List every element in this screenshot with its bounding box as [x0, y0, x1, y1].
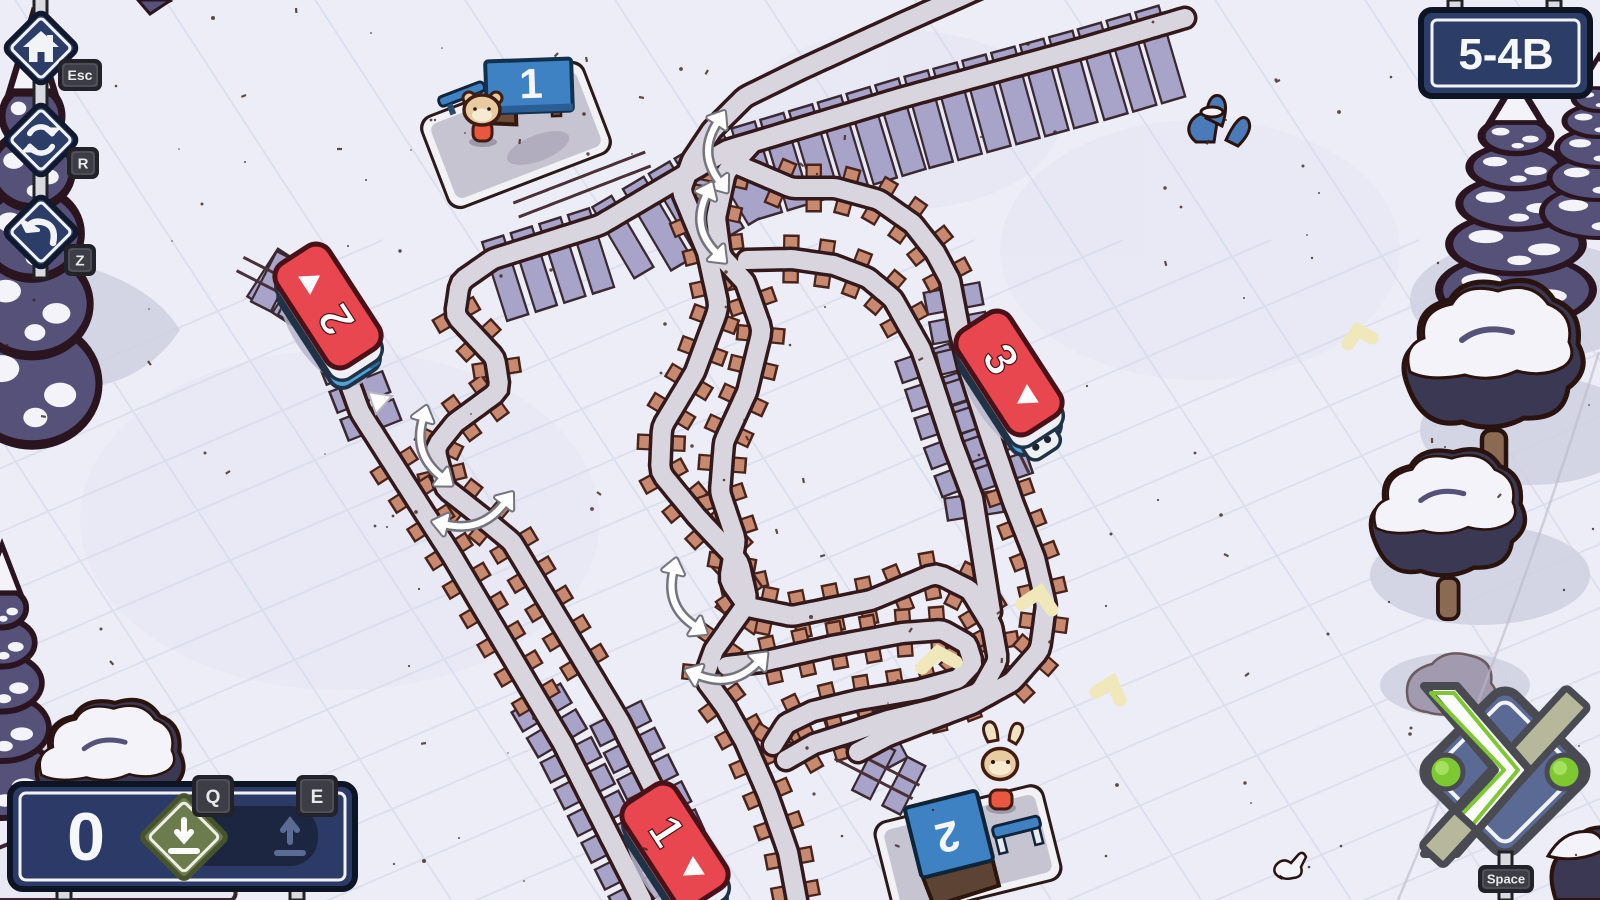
- svg-text:Esc: Esc: [68, 67, 93, 83]
- svg-text:Space: Space: [1487, 872, 1525, 887]
- svg-text:1: 1: [518, 60, 543, 108]
- svg-text:E: E: [311, 787, 324, 808]
- svg-text:Q: Q: [206, 787, 221, 808]
- svg-text:0: 0: [67, 799, 105, 875]
- svg-text:Z: Z: [75, 252, 84, 269]
- svg-text:5-4B: 5-4B: [1458, 30, 1553, 79]
- svg-text:R: R: [78, 155, 89, 172]
